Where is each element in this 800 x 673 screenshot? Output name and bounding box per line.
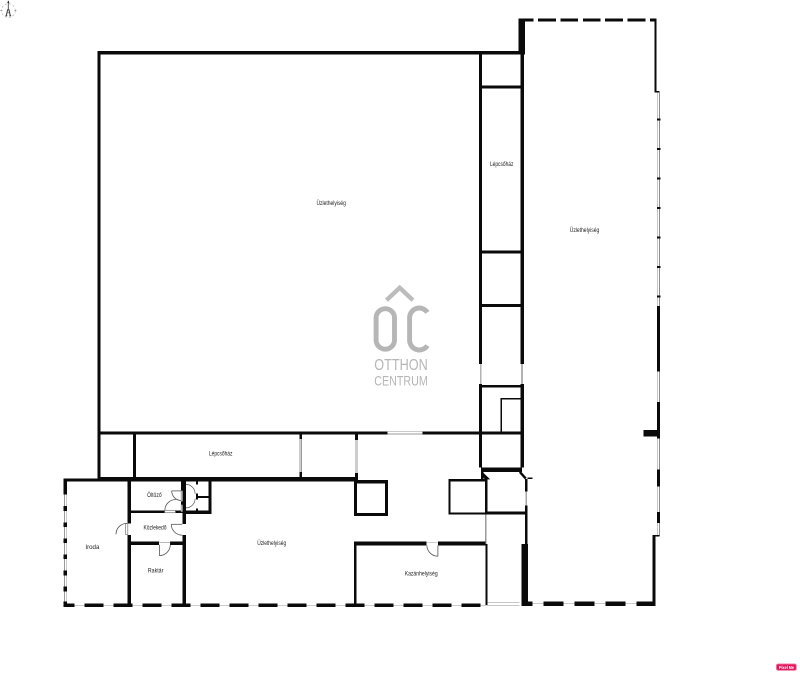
svg-text:Raktár: Raktár: [148, 569, 164, 575]
svg-text:Üzlethelyiség: Üzlethelyiség: [316, 200, 346, 207]
svg-text:Kazánhelyiség: Kazánhelyiség: [405, 572, 438, 578]
svg-text:OTTHON: OTTHON: [374, 357, 428, 374]
svg-text:Üzlethelyiség: Üzlethelyiség: [257, 540, 286, 547]
svg-text:Pixel Me: Pixel Me: [779, 665, 794, 670]
svg-text:Iroda: Iroda: [85, 545, 100, 551]
svg-text:Öltöző: Öltöző: [147, 492, 162, 499]
svg-text:Üzlethelyiség: Üzlethelyiség: [570, 227, 600, 234]
svg-text:Közlekedő: Közlekedő: [144, 526, 168, 532]
svg-text:Lépcsőház: Lépcsőház: [209, 452, 233, 458]
svg-text:CENTRUM: CENTRUM: [374, 373, 428, 389]
svg-text:Lépcsőház: Lépcsőház: [490, 162, 514, 168]
